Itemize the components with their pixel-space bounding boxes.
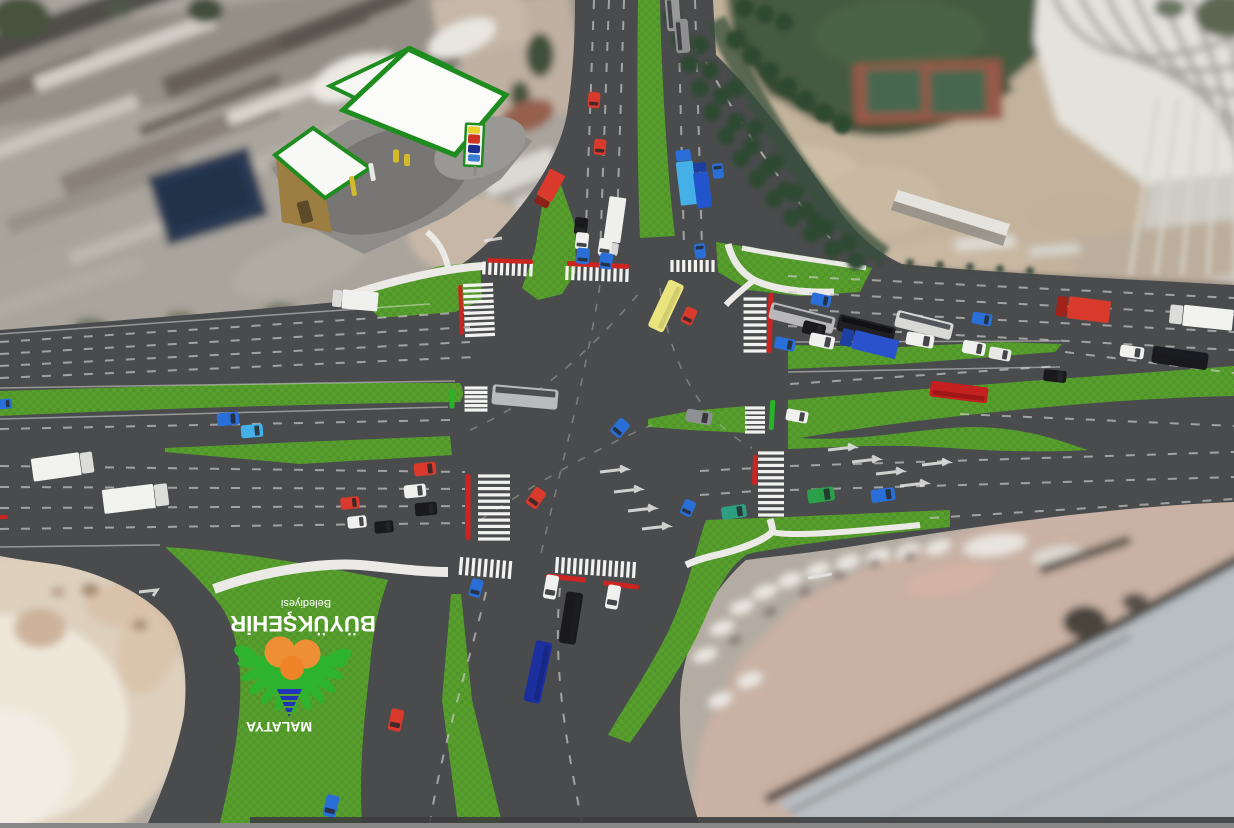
svg-text:MALATYA: MALATYA	[246, 719, 312, 735]
svg-text:BÜYÜKŞEHİR: BÜYÜKŞEHİR	[230, 611, 376, 636]
svg-text:Belediyesi: Belediyesi	[281, 597, 331, 609]
